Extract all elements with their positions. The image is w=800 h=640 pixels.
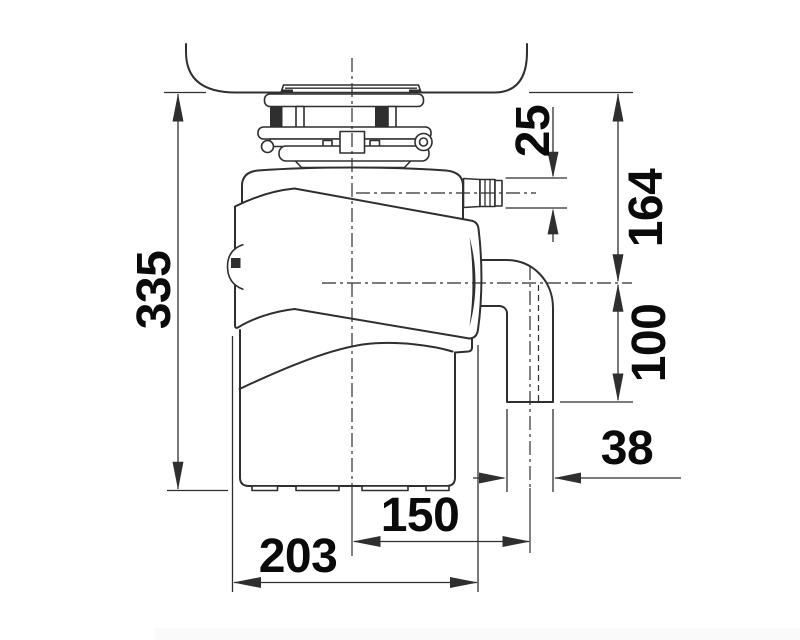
dim-label-axis-to-outlet-offset: 150 — [381, 489, 460, 542]
dim-axis-to-outlet-offset: 150 — [353, 489, 531, 547]
clamp-ear-right-inner — [420, 138, 428, 146]
dim-inlet-hose-diameter: 25 — [506, 105, 568, 242]
sink-bowl-right — [421, 44, 527, 93]
dim-label-body-width: 203 — [259, 530, 338, 583]
dim-100-arrow-bottom — [613, 374, 624, 402]
foot-2 — [296, 486, 339, 491]
dim-150-arrow-left — [353, 536, 381, 547]
dim-38-arrow-left — [479, 473, 506, 484]
dim-203-arrow-right — [450, 577, 478, 588]
dim-25-arrow-bottom — [548, 208, 559, 234]
lower-canister — [240, 330, 473, 491]
dim-label-overall-height: 335 — [128, 251, 181, 330]
dim-335-arrow-bottom — [173, 462, 184, 490]
upper-mount-ring — [265, 94, 424, 107]
clamp-hook-left — [262, 141, 274, 153]
dim-label-inlet-hose-diameter: 25 — [507, 105, 560, 157]
footer-bar — [155, 628, 800, 640]
mounting-assembly — [258, 85, 432, 168]
sink-bowl-left — [186, 44, 281, 93]
dim-label-outlet-pipe-diameter: 38 — [601, 422, 653, 475]
canister-seam — [240, 343, 453, 389]
dim-203-arrow-left — [233, 577, 261, 588]
canister-outline — [240, 330, 455, 486]
post-right — [388, 107, 396, 128]
dim-100-arrow-top — [613, 284, 624, 312]
dim-outlet-pipe-diameter: 38 — [473, 409, 681, 492]
dim-150-arrow-right — [503, 536, 531, 547]
gasket-right — [375, 106, 388, 128]
dim-overall-height: 335 — [128, 93, 228, 491]
dim-outlet-axis-to-pipe-end: 100 — [560, 284, 676, 402]
dim-335-arrow-top — [173, 94, 184, 122]
post-left — [296, 107, 304, 128]
dim-164-arrow-top — [613, 94, 624, 122]
reset-button-mark — [231, 258, 241, 268]
dimension-drawing: 335 25 164 100 38 — [0, 0, 800, 640]
dim-164-arrow-bottom — [613, 254, 624, 282]
flange-end-left — [282, 90, 293, 93]
dim-label-outlet-axis-to-pipe-end: 100 — [623, 304, 676, 383]
outlet-elbow — [474, 260, 553, 402]
gasket-left — [270, 106, 283, 128]
foot-1 — [252, 486, 278, 491]
dim-label-sink-to-outlet-axis: 164 — [620, 168, 673, 247]
canister-step — [455, 338, 472, 353]
disposer-body — [228, 168, 554, 491]
dimension-drawing-page: 335 25 164 100 38 — [0, 0, 800, 640]
flange-end-right — [409, 90, 420, 93]
dim-38-arrow-right — [554, 473, 581, 484]
